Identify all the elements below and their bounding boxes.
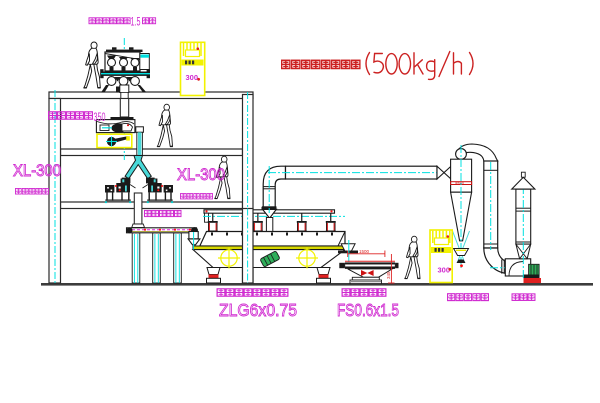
svg-text:1500: 1500 <box>359 249 370 254</box>
svg-text:FS0.6x1.5: FS0.6x1.5 <box>337 300 399 320</box>
svg-text:300: 300 <box>186 73 199 82</box>
svg-text:XL-300: XL-300 <box>13 161 61 180</box>
svg-text:ZLG6x0.75: ZLG6x0.75 <box>219 300 297 320</box>
svg-text:350: 350 <box>94 112 106 124</box>
svg-text:1.5: 1.5 <box>131 15 141 29</box>
svg-text:XL-300: XL-300 <box>177 165 225 184</box>
svg-text:Φ600: Φ600 <box>455 181 464 185</box>
svg-text:345: 345 <box>386 271 391 279</box>
svg-text:300: 300 <box>438 266 451 275</box>
